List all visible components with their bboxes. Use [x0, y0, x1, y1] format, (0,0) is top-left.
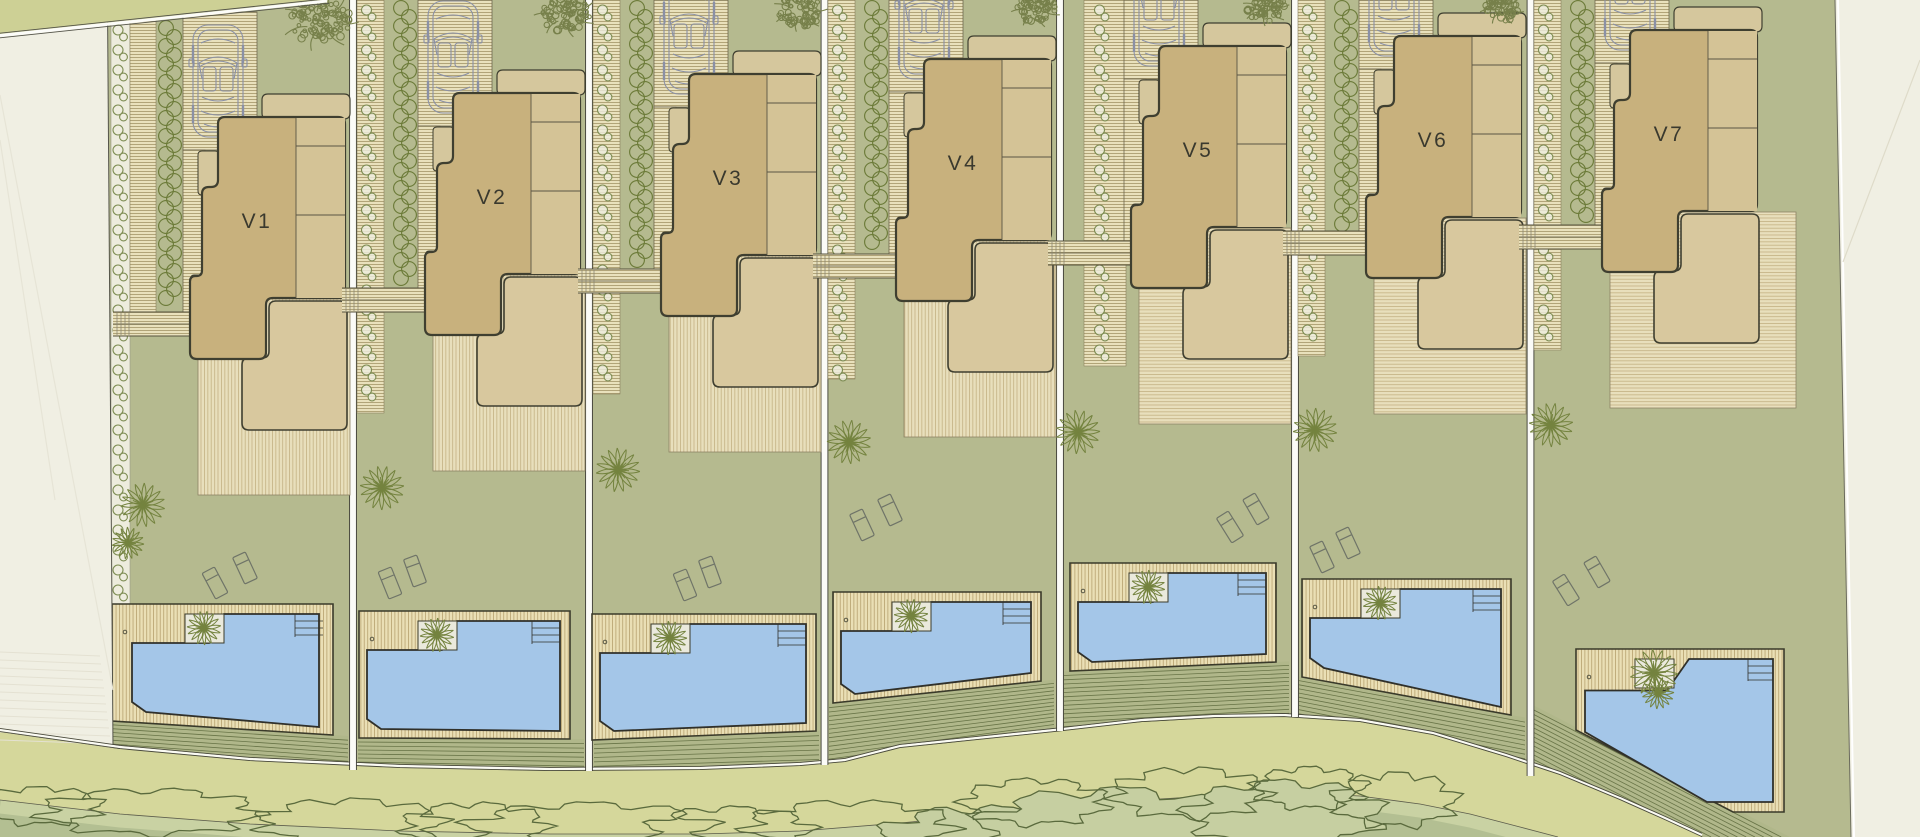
svg-text:V7: V7	[1654, 123, 1685, 146]
svg-text:V6: V6	[1418, 129, 1449, 152]
svg-text:V5: V5	[1183, 139, 1214, 162]
svg-text:V3: V3	[713, 167, 744, 190]
svg-text:V2: V2	[477, 186, 508, 209]
svg-text:V4: V4	[948, 152, 979, 175]
svg-text:V1: V1	[242, 210, 273, 233]
